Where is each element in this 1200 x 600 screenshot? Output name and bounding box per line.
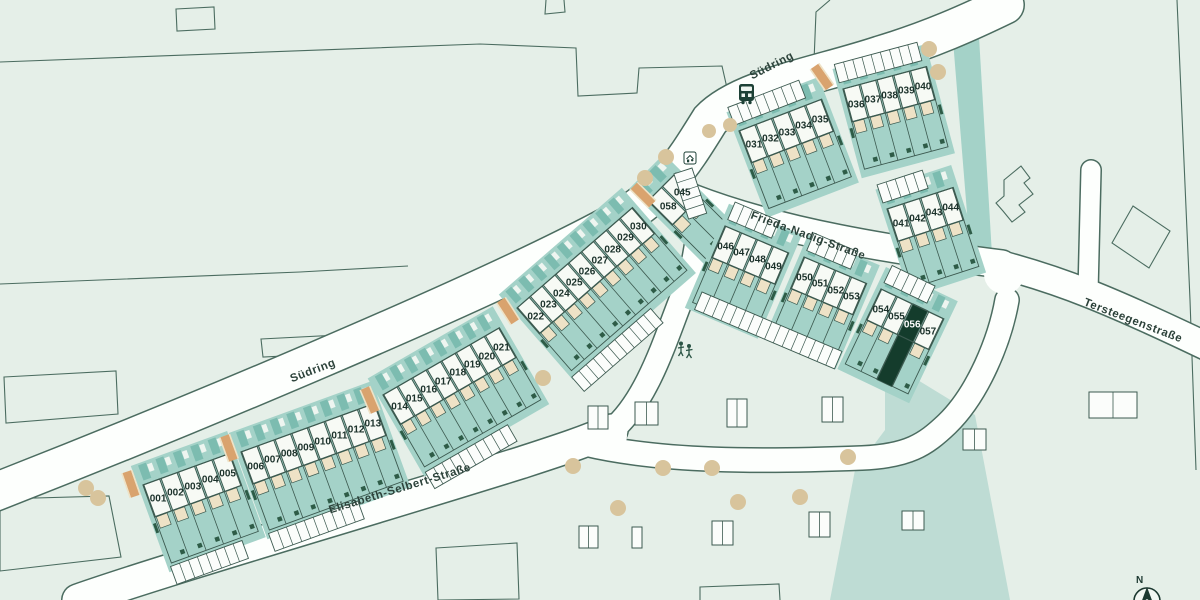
tree [90, 490, 106, 506]
junction-tersteegen [984, 254, 1024, 294]
tree [535, 370, 551, 386]
plot-label-002[interactable]: 002 [167, 488, 184, 499]
plot-label-013[interactable]: 013 [365, 418, 382, 429]
plot-label-040[interactable]: 040 [915, 81, 932, 92]
play-street-sign-icon [684, 152, 696, 164]
plot-label-026[interactable]: 026 [579, 266, 596, 277]
plot-label-031[interactable]: 031 [746, 140, 763, 151]
building-rotated-rect [1112, 206, 1170, 268]
parcel-left-upper [4, 371, 118, 423]
plot-label-035[interactable]: 035 [812, 114, 829, 125]
north-arrow-icon [1134, 587, 1160, 600]
plot-label-025[interactable]: 025 [566, 278, 583, 289]
garage [712, 521, 733, 545]
building-bottom-partial [700, 584, 780, 600]
plot-label-048[interactable]: 048 [749, 255, 766, 266]
garage [822, 397, 843, 422]
building-cross [996, 166, 1033, 222]
tree [930, 64, 946, 80]
garage [809, 512, 830, 537]
plot-label-044[interactable]: 044 [942, 202, 959, 213]
plot-label-028[interactable]: 028 [604, 244, 621, 255]
plot-label-043[interactable]: 043 [926, 208, 943, 219]
plot-label-050[interactable]: 050 [796, 272, 813, 283]
plot-label-046[interactable]: 046 [717, 241, 734, 252]
tree [637, 170, 653, 186]
garage [727, 399, 747, 427]
plot-label-033[interactable]: 033 [779, 127, 796, 138]
plot-label-008[interactable]: 008 [281, 449, 298, 460]
playground-icon [678, 342, 693, 359]
plot-label-022[interactable]: 022 [527, 311, 544, 322]
garage [963, 429, 986, 450]
plot-label-004[interactable]: 004 [202, 475, 219, 486]
plot-label-021[interactable]: 021 [493, 343, 510, 354]
tree [658, 149, 674, 165]
site-plan-map: Südring Südring Elisabeth-Selbert-Straße… [0, 0, 1200, 600]
plot-label-011[interactable]: 011 [331, 431, 347, 442]
plot-label-053[interactable]: 053 [843, 292, 860, 303]
building-top-small [176, 7, 215, 31]
plot-label-045[interactable]: 045 [674, 188, 691, 199]
parcel-left-lower [0, 496, 121, 571]
tree [655, 460, 671, 476]
tree [704, 460, 720, 476]
plot-label-010[interactable]: 010 [314, 437, 331, 448]
plot-label-041[interactable]: 041 [893, 219, 910, 230]
parcel-top-left-bottom-edge [0, 266, 408, 284]
garage [579, 526, 598, 548]
plot-label-032[interactable]: 032 [762, 133, 779, 144]
plot-label-027[interactable]: 027 [591, 255, 608, 266]
plot-label-049[interactable]: 049 [765, 261, 782, 272]
plot-label-057[interactable]: 057 [920, 327, 937, 338]
plot-label-003[interactable]: 003 [185, 481, 202, 492]
tree [610, 500, 626, 516]
garage [632, 527, 642, 548]
plot-label-051[interactable]: 051 [812, 279, 829, 290]
garage [1089, 392, 1137, 418]
plot-label-007[interactable]: 007 [264, 455, 281, 466]
tree [702, 124, 716, 138]
plot-label-052[interactable]: 052 [827, 285, 844, 296]
parcel-right-boundary [1177, 0, 1196, 470]
plot-label-012[interactable]: 012 [348, 425, 365, 436]
tree [730, 494, 746, 510]
plot-label-005[interactable]: 005 [219, 469, 236, 480]
plot-label-038[interactable]: 038 [881, 90, 898, 101]
garage [635, 402, 658, 425]
plot-label-036[interactable]: 036 [848, 99, 865, 110]
plot-label-023[interactable]: 023 [540, 300, 557, 311]
tree [565, 458, 581, 474]
plot-label-039[interactable]: 039 [898, 86, 915, 97]
plot-label-058[interactable]: 058 [660, 202, 677, 213]
tree [921, 41, 937, 57]
parcel-top-left [0, 0, 830, 96]
plot-label-006[interactable]: 006 [247, 461, 264, 472]
garage [902, 511, 924, 530]
garage [588, 406, 608, 429]
plot-label-001[interactable]: 001 [150, 494, 167, 505]
site-plan-svg [0, 0, 1200, 600]
tree [723, 118, 737, 132]
road-stub [1088, 170, 1091, 292]
plot-label-056[interactable]: 056 [904, 319, 921, 330]
building-top-partial [545, 0, 565, 14]
tree [792, 489, 808, 505]
plot-label-029[interactable]: 029 [617, 233, 634, 244]
building-bottom-center [436, 543, 519, 600]
plot-label-054[interactable]: 054 [872, 304, 889, 315]
plot-label-037[interactable]: 037 [865, 95, 882, 106]
plot-label-047[interactable]: 047 [733, 248, 750, 259]
plot-label-009[interactable]: 009 [298, 443, 315, 454]
plot-label-024[interactable]: 024 [553, 289, 570, 300]
plot-label-034[interactable]: 034 [795, 121, 812, 132]
plot-label-055[interactable]: 055 [888, 312, 905, 323]
tree [840, 449, 856, 465]
plot-label-030[interactable]: 030 [630, 222, 647, 233]
plot-label-042[interactable]: 042 [909, 213, 926, 224]
